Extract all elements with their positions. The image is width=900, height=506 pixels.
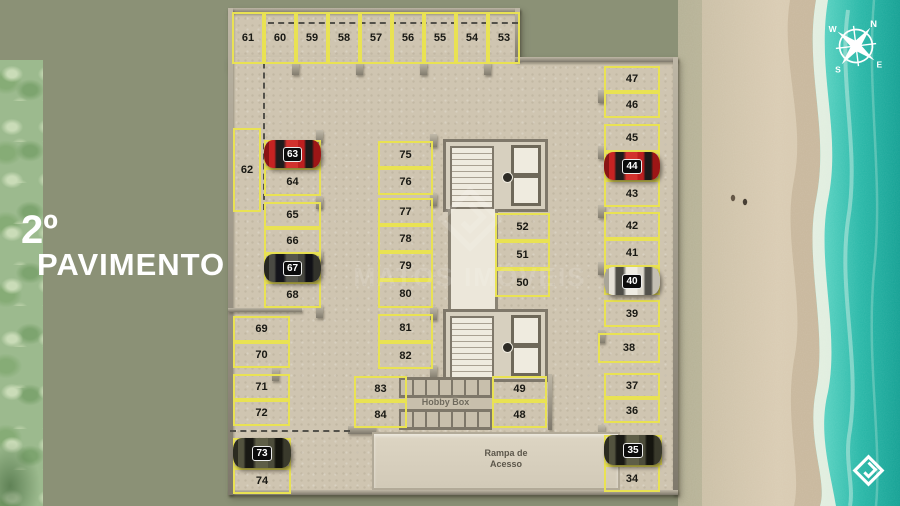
parking-space-56: 56: [392, 12, 424, 64]
parking-space-number: 42: [626, 220, 638, 232]
wall-hobby-right: [548, 374, 552, 430]
elevator-indicator-icon: [502, 172, 513, 183]
parking-space-number: 47: [626, 73, 638, 85]
parking-space-60: 60: [264, 12, 296, 64]
parking-space-77: 77: [378, 198, 433, 225]
parking-space-37: 37: [604, 373, 660, 398]
parking-space-50: 50: [495, 269, 550, 297]
parking-space-40: 40: [604, 267, 660, 295]
parking-space-number: 63: [283, 147, 302, 162]
parking-space-number: 34: [626, 473, 638, 485]
parking-space-number: 68: [286, 289, 298, 301]
parking-space-number: 82: [399, 350, 411, 362]
parking-space-number: 77: [399, 206, 411, 218]
parking-space-72: 72: [233, 400, 290, 426]
parking-space-number: 51: [516, 249, 528, 261]
parking-space-number: 40: [622, 274, 641, 289]
parking-space-number: 84: [374, 409, 386, 421]
floor-title-word: PAVIMENTO: [37, 249, 225, 280]
parking-space-66: 66: [264, 228, 321, 254]
parking-space-number: 57: [370, 32, 382, 44]
parking-space-number: 76: [399, 176, 411, 188]
wall-stub-left-mid: [228, 308, 302, 312]
parking-space-number: 36: [626, 405, 638, 417]
compass-south-label: S: [835, 65, 841, 75]
parking-space-78: 78: [378, 225, 433, 252]
access-ramp: Rampa de Acesso: [372, 432, 620, 490]
parking-space-number: 35: [623, 443, 642, 458]
parking-space-81: 81: [378, 314, 433, 342]
parking-space-73: 73: [233, 438, 291, 468]
wall-right: [673, 57, 678, 495]
hobby-box-area: Hobby Box: [399, 377, 492, 430]
parking-space-number: 75: [399, 149, 411, 161]
stair-elevator-core-bottom: [443, 309, 548, 382]
parking-space-42: 42: [604, 212, 660, 239]
parking-space-number: 60: [274, 32, 286, 44]
parking-space-number: 64: [286, 176, 298, 188]
parking-space-number: 66: [286, 235, 298, 247]
parking-space-54: 54: [456, 12, 488, 64]
floorplan-scene: 2º PAVIMENTO: [0, 0, 900, 506]
elevator-shaft: [511, 145, 541, 176]
parking-space-67: 67: [264, 254, 321, 282]
parking-space-number: 56: [402, 32, 414, 44]
parking-space-number: 41: [626, 247, 638, 259]
ramp-label: Rampa de Acesso: [446, 448, 566, 471]
parking-space-number: 49: [513, 383, 525, 395]
parking-space-number: 44: [622, 159, 641, 174]
parking-space-number: 80: [399, 288, 411, 300]
parking-space-61: 61: [232, 12, 264, 64]
parking-space-51: 51: [495, 241, 550, 269]
parking-space-number: 71: [255, 381, 267, 393]
parking-space-number: 69: [255, 323, 267, 335]
parking-space-69: 69: [233, 316, 290, 342]
parking-space-39: 39: [604, 300, 660, 327]
parking-space-number: 83: [374, 383, 386, 395]
parking-space-70: 70: [233, 342, 290, 368]
parking-space-number: 55: [434, 32, 446, 44]
parking-space-number: 52: [516, 221, 528, 233]
parking-space-62: 62: [233, 128, 261, 212]
parking-space-48: 48: [492, 401, 547, 428]
ramp-label-line1: Rampa de: [446, 448, 566, 459]
hobby-box-row: [399, 409, 492, 430]
parking-space-58: 58: [328, 12, 360, 64]
floor-title-number: 2º: [21, 210, 58, 250]
parking-space-75: 75: [378, 141, 433, 168]
parking-space-79: 79: [378, 252, 433, 280]
parking-space-45: 45: [604, 124, 660, 152]
parking-space-38: 38: [598, 333, 660, 363]
vegetation-strip: [0, 60, 43, 506]
stair-elevator-core-top: [443, 139, 548, 212]
parking-space-number: 78: [399, 233, 411, 245]
parking-space-number: 50: [516, 277, 528, 289]
parking-space-number: 67: [283, 261, 302, 276]
elevator-shaft: [511, 345, 541, 376]
parking-space-44: 44: [604, 152, 660, 180]
parking-space-82: 82: [378, 342, 433, 369]
parking-space-65: 65: [264, 202, 321, 228]
staircase: [450, 316, 494, 379]
hobby-box-row: [399, 377, 492, 398]
parking-space-76: 76: [378, 168, 433, 195]
parking-space-47: 47: [604, 66, 660, 92]
parking-space-number: 74: [256, 475, 268, 487]
parking-space-43: 43: [604, 180, 660, 207]
parking-space-number: 48: [513, 409, 525, 421]
compass-rose-icon: N E S W: [822, 12, 890, 80]
parking-space-36: 36: [604, 398, 660, 423]
elevator-indicator-icon: [502, 342, 513, 353]
parking-space-57: 57: [360, 12, 392, 64]
parking-space-number: 37: [626, 380, 638, 392]
hobby-box-label: Hobby Box: [399, 397, 492, 407]
parking-space-41: 41: [604, 239, 660, 267]
compass-west-label: W: [829, 24, 838, 34]
parking-space-number: 46: [626, 99, 638, 111]
parking-space-number: 73: [252, 446, 271, 461]
parking-space-59: 59: [296, 12, 328, 64]
wall-top-right-horizontal: [515, 57, 678, 62]
parking-space-number: 39: [626, 308, 638, 320]
parking-space-number: 58: [338, 32, 350, 44]
staircase: [450, 146, 494, 209]
parking-space-34: 34: [604, 465, 660, 492]
parking-space-number: 62: [241, 164, 253, 176]
parking-space-52: 52: [495, 213, 550, 241]
parking-space-49: 49: [492, 376, 547, 401]
parking-space-64: 64: [264, 168, 321, 196]
parking-space-number: 79: [399, 260, 411, 272]
elevator-shaft: [511, 175, 541, 206]
parking-space-74: 74: [233, 468, 291, 494]
compass-east-label: E: [877, 59, 883, 69]
parking-space-35: 35: [604, 435, 662, 465]
compass-north-label: N: [870, 19, 877, 30]
parking-space-number: 53: [498, 32, 510, 44]
parking-space-number: 54: [466, 32, 478, 44]
parking-space-number: 45: [626, 132, 638, 144]
parking-space-63: 63: [264, 140, 321, 168]
parking-space-number: 61: [242, 32, 254, 44]
parking-space-71: 71: [233, 374, 290, 400]
parking-space-80: 80: [378, 280, 433, 308]
brand-logo-icon: [850, 452, 887, 489]
parking-space-number: 65: [286, 209, 298, 221]
parking-space-number: 81: [399, 322, 411, 334]
elevator-shaft: [511, 315, 541, 346]
parking-space-number: 38: [623, 342, 635, 354]
ramp-label-line2: Acesso: [446, 459, 566, 470]
parking-space-number: 43: [626, 188, 638, 200]
parking-space-53: 53: [488, 12, 520, 64]
parking-space-number: 59: [306, 32, 318, 44]
parking-space-68: 68: [264, 282, 321, 308]
lobby-hall: [448, 209, 498, 311]
parking-space-46: 46: [604, 92, 660, 118]
parking-space-55: 55: [424, 12, 456, 64]
parking-space-number: 72: [255, 407, 267, 419]
parking-space-number: 70: [255, 349, 267, 361]
dashed-line-bottom: [230, 430, 350, 432]
